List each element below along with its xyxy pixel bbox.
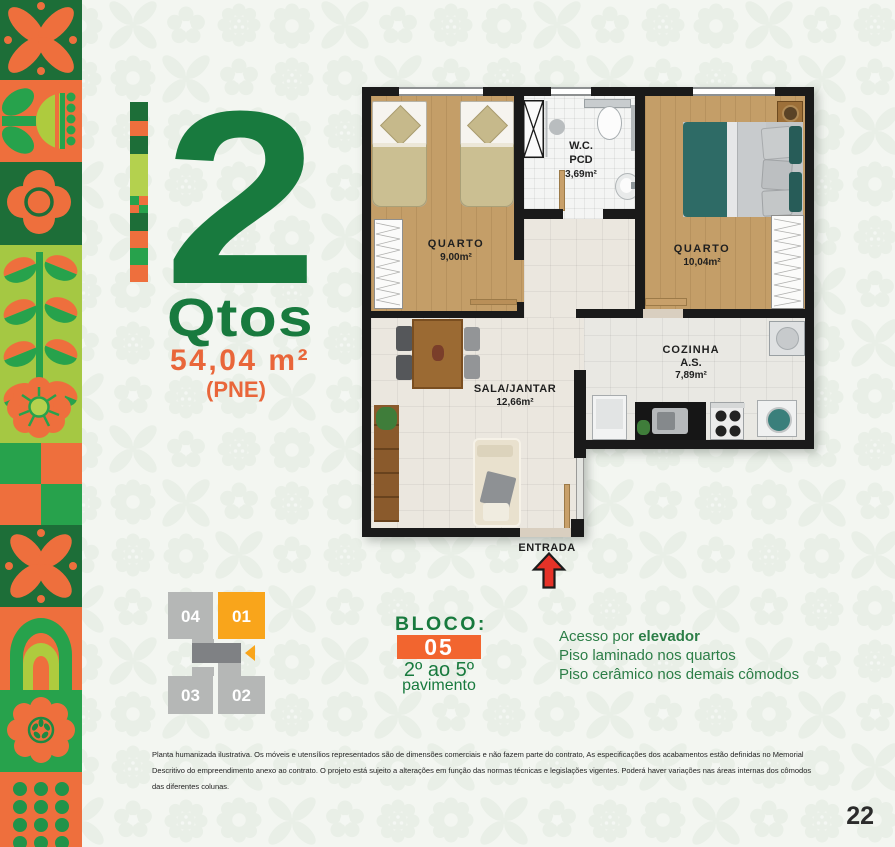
svg-text:03: 03 — [181, 686, 200, 705]
svg-text:02: 02 — [232, 686, 251, 705]
svg-text:04: 04 — [181, 607, 200, 626]
svg-text:01: 01 — [232, 607, 251, 626]
